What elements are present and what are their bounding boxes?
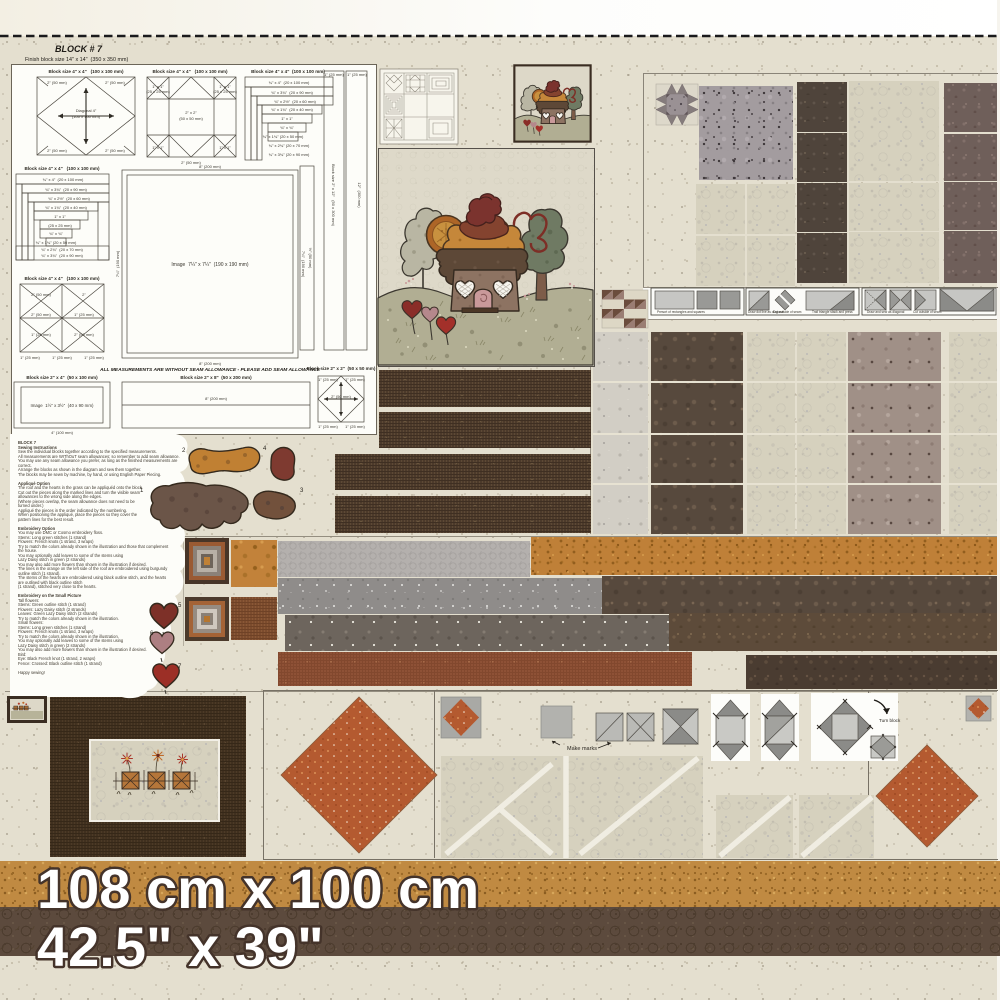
svg-text:¾" x 2½" (20 x 60 mm): ¾" x 2½" (20 x 60 mm) xyxy=(48,196,90,201)
svg-text:Block size 2" x 12" (50 x 30: Block size 2" x 12" (50 x 300 mm) xyxy=(331,164,336,227)
svg-text:1" (25 mm): 1" (25 mm) xyxy=(20,355,40,360)
svg-text:2": 2" xyxy=(82,292,86,297)
svg-text:1" (25 mm): 1" (25 mm) xyxy=(318,424,338,429)
svg-text:(25 x 25 mm): (25 x 25 mm) xyxy=(146,89,170,94)
svg-text:¾" x 2¾" (20 x 70 mm): ¾" x 2¾" (20 x 70 mm) xyxy=(41,247,83,252)
svg-text:¾" x 4" (20 x 100 mm): ¾" x 4" (20 x 100 mm) xyxy=(43,177,84,182)
svg-text:4: 4 xyxy=(263,446,267,452)
svg-text:2" (50 mm): 2" (50 mm) xyxy=(47,148,67,153)
svg-text:1" (25 mm): 1" (25 mm) xyxy=(347,72,367,77)
svg-text:1" x 1": 1" x 1" xyxy=(54,214,66,219)
svg-text:Block size 4" x 4" (100 x 10: Block size 4" x 4" (100 x 100 mm) xyxy=(48,69,124,74)
svg-text:Block size 2" x 2" (50 x 50 m: Block size 2" x 2" (50 x 50 mm) xyxy=(307,366,376,371)
svg-text:Block size 2" x 8" (50 x 200: Block size 2" x 8" (50 x 200 mm) xyxy=(180,375,252,380)
svg-text:1" (25 mm): 1" (25 mm) xyxy=(318,377,338,382)
svg-text:¾" x 4" (20 x 100 mm): ¾" x 4" (20 x 100 mm) xyxy=(269,80,310,85)
svg-text:42.5" x 39": 42.5" x 39" xyxy=(37,915,324,978)
svg-text:1" (25 mm): 1" (25 mm) xyxy=(345,377,365,382)
svg-text:2" (50 mm): 2" (50 mm) xyxy=(31,312,51,317)
svg-text:1" x 1": 1" x 1" xyxy=(152,145,164,150)
svg-text:(50 x 50 mm): (50 x 50 mm) xyxy=(179,116,203,121)
svg-text:½" (50 mm): ½" (50 mm) xyxy=(308,248,313,269)
svg-text:1" x 1": 1" x 1" xyxy=(219,145,231,150)
svg-text:12" (300 mm): 12" (300 mm) xyxy=(357,182,362,208)
svg-text:¾" x 1¾" (20 x 40 mm): ¾" x 1¾" (20 x 40 mm) xyxy=(45,205,87,210)
svg-text:2" (50 mm): 2" (50 mm) xyxy=(47,80,67,85)
svg-text:Diagonal 4": Diagonal 4" xyxy=(76,108,97,113)
svg-text:1" (25 mm): 1" (25 mm) xyxy=(84,355,104,360)
svg-text:1" (25 mm): 1" (25 mm) xyxy=(52,355,72,360)
svg-text:(100 x 100 mm): (100 x 100 mm) xyxy=(72,114,101,119)
svg-text:4" (100 mm): 4" (100 mm) xyxy=(51,430,74,435)
svg-text:108 cm x 100 cm: 108 cm x 100 cm xyxy=(37,857,479,920)
svg-text:(25 x 25 mm): (25 x 25 mm) xyxy=(213,89,237,94)
svg-text:Turn block: Turn block xyxy=(879,718,901,723)
svg-text:Block size 2" x 4" (50 x 100: Block size 2" x 4" (50 x 100 mm) xyxy=(26,375,98,380)
svg-text:Cut outside of seam: Cut outside of seam xyxy=(913,310,942,314)
svg-text:2" x 2": 2" x 2" xyxy=(185,110,197,115)
svg-text:3: 3 xyxy=(300,488,304,494)
svg-text:¾" x 3¾" (20 x 90 mm): ¾" x 3¾" (20 x 90 mm) xyxy=(269,152,310,157)
svg-text:2" (50 mm): 2" (50 mm) xyxy=(74,332,94,337)
svg-text:Draw and sew as diagonal: Draw and sew as diagonal xyxy=(867,310,905,314)
svg-text:1" (25 mm): 1" (25 mm) xyxy=(324,72,344,77)
svg-text:1" (25 mm): 1" (25 mm) xyxy=(74,312,94,317)
svg-text:2" (50 mm): 2" (50 mm) xyxy=(331,394,351,399)
svg-text:2" (50 mm): 2" (50 mm) xyxy=(31,292,51,297)
svg-text:¾" x 1¾" (20 x 50 mm): ¾" x 1¾" (20 x 50 mm) xyxy=(36,240,77,245)
svg-text:Block size 4" x 4" (100 x 10: Block size 4" x 4" (100 x 100 mm) xyxy=(152,69,228,74)
svg-text:Make marks: Make marks xyxy=(567,746,597,752)
svg-text:ALL MEASUREMENTS ARE WITHOUT S: ALL MEASUREMENTS ARE WITHOUT SEAM ALLOWA… xyxy=(99,367,321,373)
svg-text:¾" x 3¾" (20 x 90 mm): ¾" x 3¾" (20 x 90 mm) xyxy=(41,253,83,258)
svg-text:Finish block size 14" x 14" (: Finish block size 14" x 14" (350 x 350 m… xyxy=(25,57,129,63)
svg-text:8" (200 mm): 8" (200 mm) xyxy=(205,396,228,401)
svg-text:Block size 4" x 4" (100 x 100: Block size 4" x 4" (100 x 100 mm) xyxy=(251,69,325,74)
svg-text:2" (50 mm): 2" (50 mm) xyxy=(105,80,125,85)
svg-text:7¼" (190 mm): 7¼" (190 mm) xyxy=(115,250,120,277)
svg-text:¾" x ¾": ¾" x ¾" xyxy=(49,231,63,236)
svg-text:Image 1½" x 3½" (40 x 90 mm): Image 1½" x 3½" (40 x 90 mm) xyxy=(31,403,94,408)
svg-text:1" (25 mm): 1" (25 mm) xyxy=(31,332,51,337)
svg-text:¾" x 2¾" (20 x 70 mm): ¾" x 2¾" (20 x 70 mm) xyxy=(269,143,310,148)
svg-text:1" x 1": 1" x 1" xyxy=(281,116,293,121)
svg-text:¾" x 2½" (20 x 60 mm): ¾" x 2½" (20 x 60 mm) xyxy=(274,99,316,104)
svg-text:¾" x ¾": ¾" x ¾" xyxy=(280,125,294,130)
svg-text:¾" x 1¾" (20 x 40 mm): ¾" x 1¾" (20 x 40 mm) xyxy=(271,107,313,112)
svg-text:¾" x 3¾" (20 x 90 mm): ¾" x 3¾" (20 x 90 mm) xyxy=(271,90,313,95)
svg-text:¾" x 1¾" (20 x 50 mm): ¾" x 1¾" (20 x 50 mm) xyxy=(263,134,304,139)
svg-text:(25 x 25 mm): (25 x 25 mm) xyxy=(48,223,72,228)
svg-text:Cut outside of seam: Cut outside of seam xyxy=(773,310,802,314)
svg-text:¾" x 3¾" (20 x 90 mm): ¾" x 3¾" (20 x 90 mm) xyxy=(45,187,87,192)
svg-text:8" (200 mm): 8" (200 mm) xyxy=(199,164,222,169)
svg-text:Block size 4" x 4" (100 x 10: Block size 4" x 4" (100 x 100 mm) xyxy=(24,166,100,171)
svg-text:1" (25 mm): 1" (25 mm) xyxy=(345,424,365,429)
svg-text:Block size 4" x 4" (100 x 10: Block size 4" x 4" (100 x 100 mm) xyxy=(24,276,100,281)
svg-text:Trail triangle stack and press: Trail triangle stack and press xyxy=(812,310,853,314)
svg-text:BLOCK # 7: BLOCK # 7 xyxy=(55,44,103,54)
svg-text:7¼" (190 mm): 7¼" (190 mm) xyxy=(301,251,306,278)
svg-text:8" (200 mm): 8" (200 mm) xyxy=(199,361,222,366)
svg-text:Image 7¼" x 7¼" (190 x 190 m: Image 7¼" x 7¼" (190 x 190 mm) xyxy=(171,262,249,268)
svg-text:Presort of rectangles and squa: Presort of rectangles and squares xyxy=(657,310,705,314)
svg-text:2" (50 mm): 2" (50 mm) xyxy=(105,148,125,153)
